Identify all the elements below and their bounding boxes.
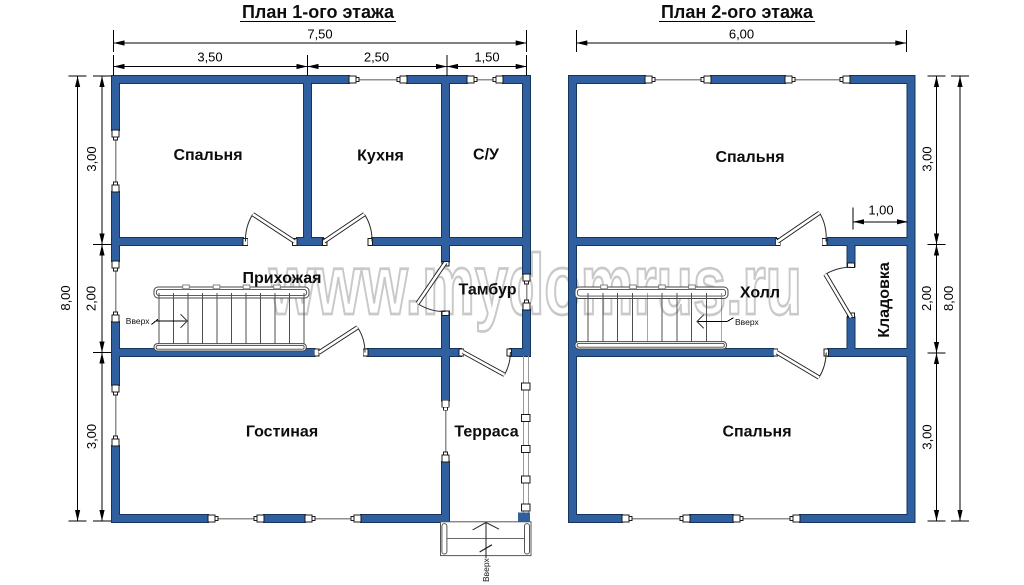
svg-text:Вверх: Вверх [126,316,150,326]
svg-text:Спальня: Спальня [173,147,242,164]
svg-text:Кухня: Кухня [357,148,404,165]
svg-text:Терраса: Терраса [454,424,518,441]
svg-text:Прихожая: Прихожая [243,270,322,287]
svg-text:3,50: 3,50 [197,50,222,65]
svg-text:Холл: Холл [740,285,780,302]
svg-text:Вверх: Вверх [481,558,491,582]
svg-text:2,00: 2,00 [919,286,934,311]
svg-text:План 2-ого этажа: План 2-ого этажа [661,2,814,22]
svg-text:План 1-ого этажа: План 1-ого этажа [242,2,395,22]
svg-text:3,00: 3,00 [920,146,935,171]
svg-text:Спальня: Спальня [715,149,784,166]
svg-text:3,00: 3,00 [84,146,99,171]
svg-text:2,00: 2,00 [83,286,98,311]
svg-text:6,00: 6,00 [729,27,754,42]
svg-text:Вверх: Вверх [735,317,759,327]
svg-text:Тамбур: Тамбур [458,282,516,299]
svg-text:8,00: 8,00 [58,285,73,310]
svg-text:1,50: 1,50 [474,50,499,65]
svg-text:3,00: 3,00 [920,424,935,449]
svg-text:Спальня: Спальня [722,424,791,441]
svg-text:www.mydomrus.ru: www.mydomrus.ru [268,238,802,333]
svg-text:7,50: 7,50 [307,27,332,42]
svg-text:1,00: 1,00 [868,202,893,217]
svg-text:8,00: 8,00 [941,286,956,311]
svg-text:2,50: 2,50 [364,50,389,65]
svg-text:Кладовка: Кладовка [876,262,893,338]
svg-text:Гостиная: Гостиная [246,424,318,441]
svg-text:С/У: С/У [473,147,500,164]
svg-text:3,00: 3,00 [84,424,99,449]
